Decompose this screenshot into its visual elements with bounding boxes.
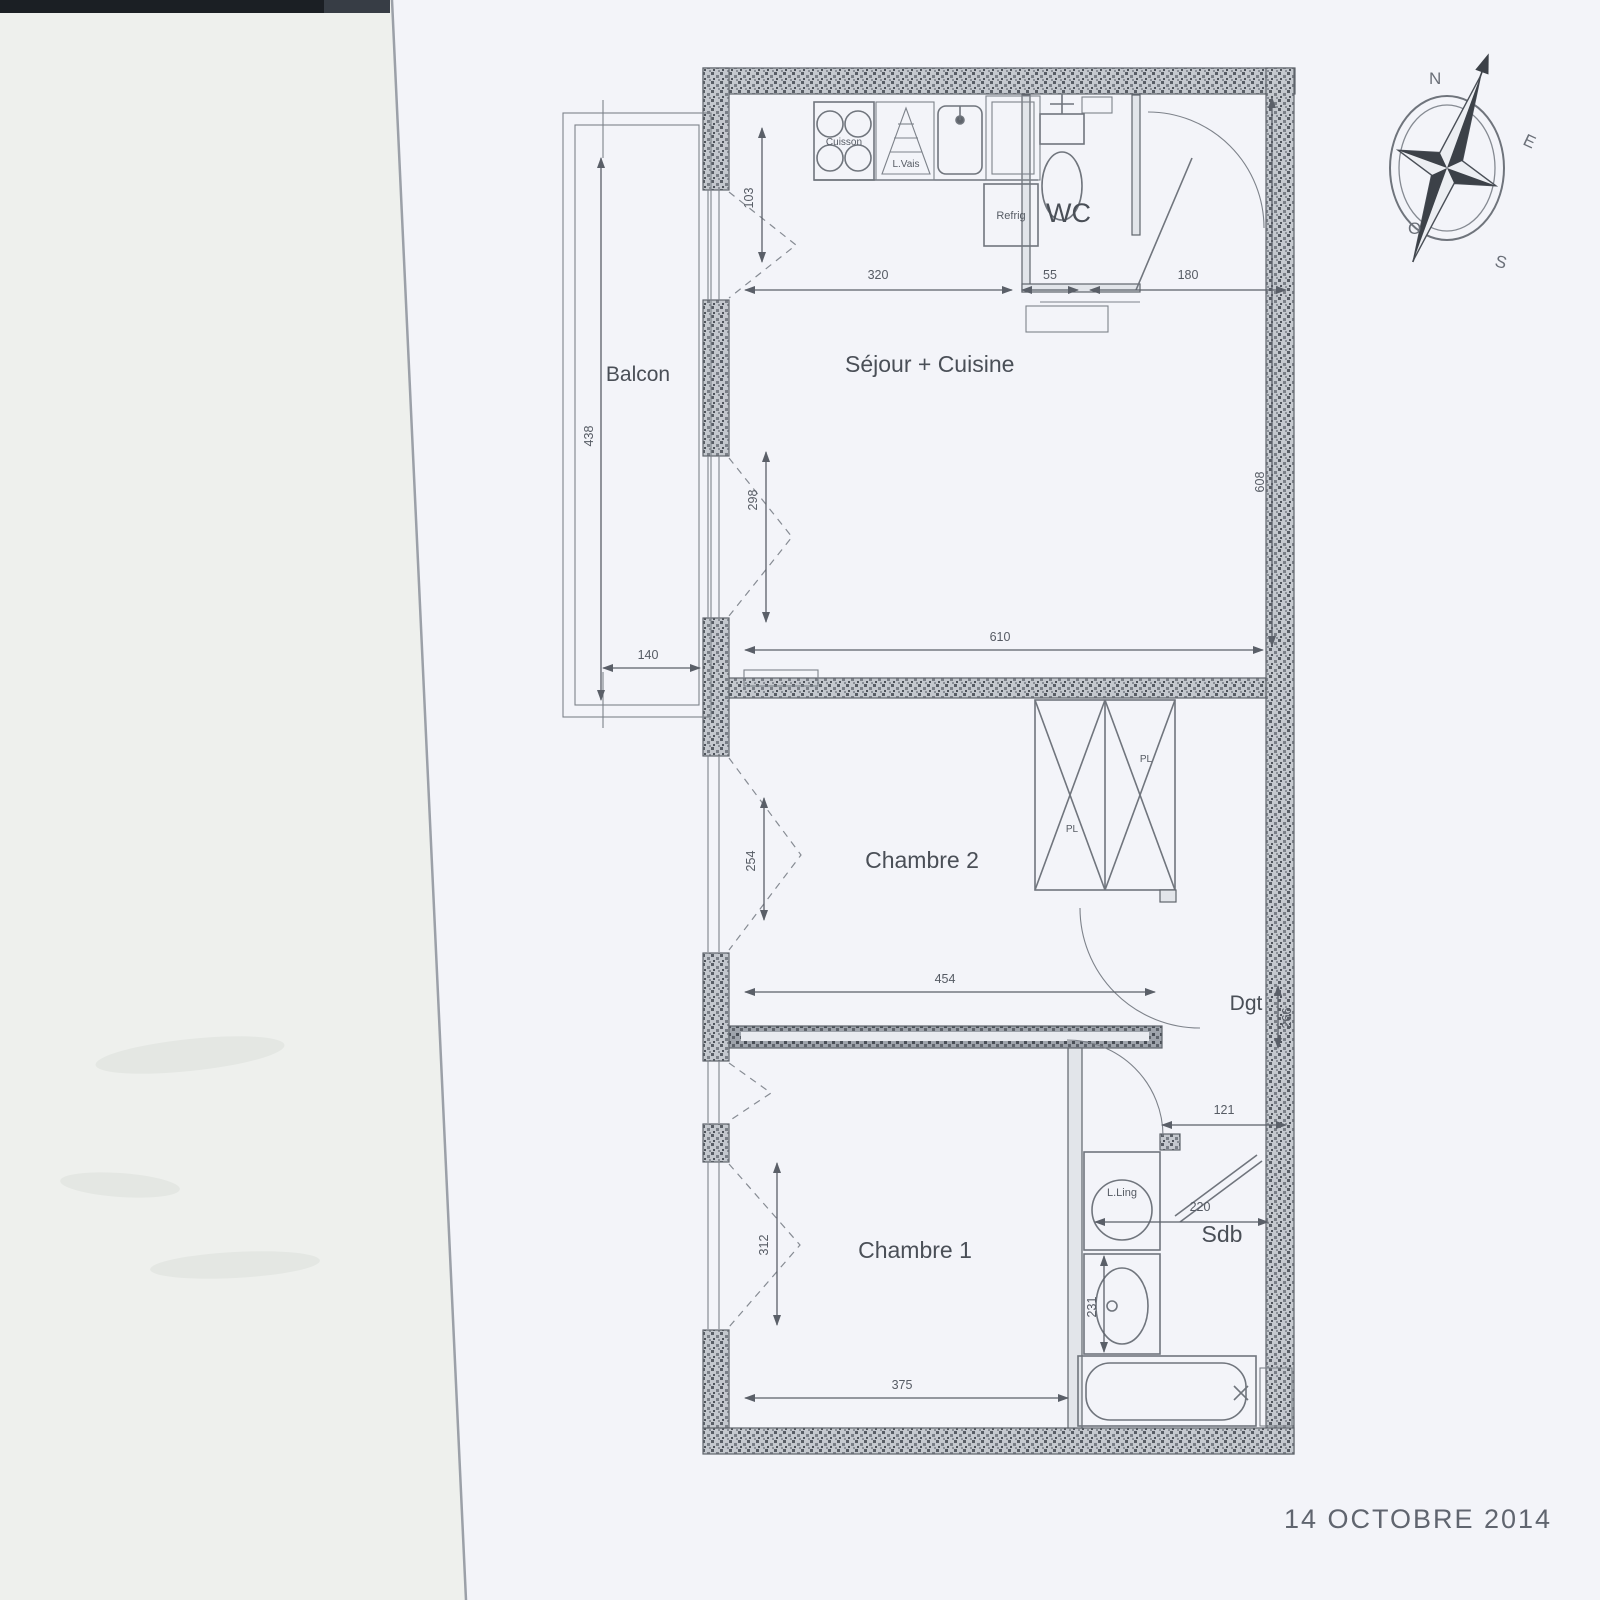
compass-n: N <box>1429 69 1441 88</box>
wall-wc-bottom <box>1022 284 1140 292</box>
wall-sejour-bedroom2 <box>729 678 1266 698</box>
hob-label: Cuisson <box>826 137 862 148</box>
dishwasher-label: L.Vais <box>892 159 919 170</box>
compass-o: O <box>1408 219 1421 238</box>
wall-stub-wardrobe <box>1160 890 1176 902</box>
dim-dgt-h: 266 <box>1280 1008 1294 1029</box>
wall-bedroom1-sdb <box>1068 1048 1082 1428</box>
dim-balcony-w: 140 <box>638 648 659 662</box>
label-balcony: Balcon <box>606 363 670 386</box>
dim-sejour-window: 298 <box>746 490 760 511</box>
wall-bedroom2-bedroom1-stripe <box>741 1032 1149 1041</box>
scanner-black-bar-end <box>324 0 390 13</box>
dim-sdb-door: 121 <box>1214 1103 1235 1117</box>
dim-sdb-h: 231 <box>1085 1297 1099 1318</box>
wall-sdb-stub <box>1160 1134 1180 1150</box>
label-hallway: Dgt <box>1230 992 1263 1015</box>
wall-wc-right <box>1132 95 1140 235</box>
dim-bed1-window: 312 <box>757 1235 771 1256</box>
dim-sdb-w: 220 <box>1190 1200 1211 1214</box>
dim-kitchen-w: 320 <box>868 268 889 282</box>
dim-entry-w: 180 <box>1178 268 1199 282</box>
dim-wc-w: 55 <box>1043 268 1057 282</box>
dim-balcony-l: 438 <box>582 426 596 447</box>
dim-bed2-w: 454 <box>935 972 956 986</box>
fridge-label: Refrig <box>996 210 1025 222</box>
date-stamp: 14 OCTOBRE 2014 <box>1284 1504 1552 1534</box>
dim-sejour-h: 608 <box>1253 472 1267 493</box>
label-bedroom2: Chambre 2 <box>865 847 979 873</box>
label-living-kitchen: Séjour + Cuisine <box>845 351 1014 377</box>
wc-label: WC <box>1046 198 1091 228</box>
scanned-floor-plan-page: Cuisson L.Vais Refrig <box>0 0 1600 1600</box>
dim-sejour-w: 610 <box>990 630 1011 644</box>
dim-bed2-window: 254 <box>744 851 758 872</box>
dim-bed1-w: 375 <box>892 1378 913 1392</box>
wall-wc-left <box>1022 95 1030 292</box>
label-bedroom1: Chambre 1 <box>858 1237 972 1263</box>
wardrobe-label-left: PL <box>1066 824 1079 835</box>
washer-label: L.Ling <box>1107 1187 1137 1199</box>
label-bathroom: Sdb <box>1202 1221 1243 1247</box>
wardrobe-label-right: PL <box>1140 754 1153 765</box>
dim-sejour-door: 103 <box>742 188 756 209</box>
